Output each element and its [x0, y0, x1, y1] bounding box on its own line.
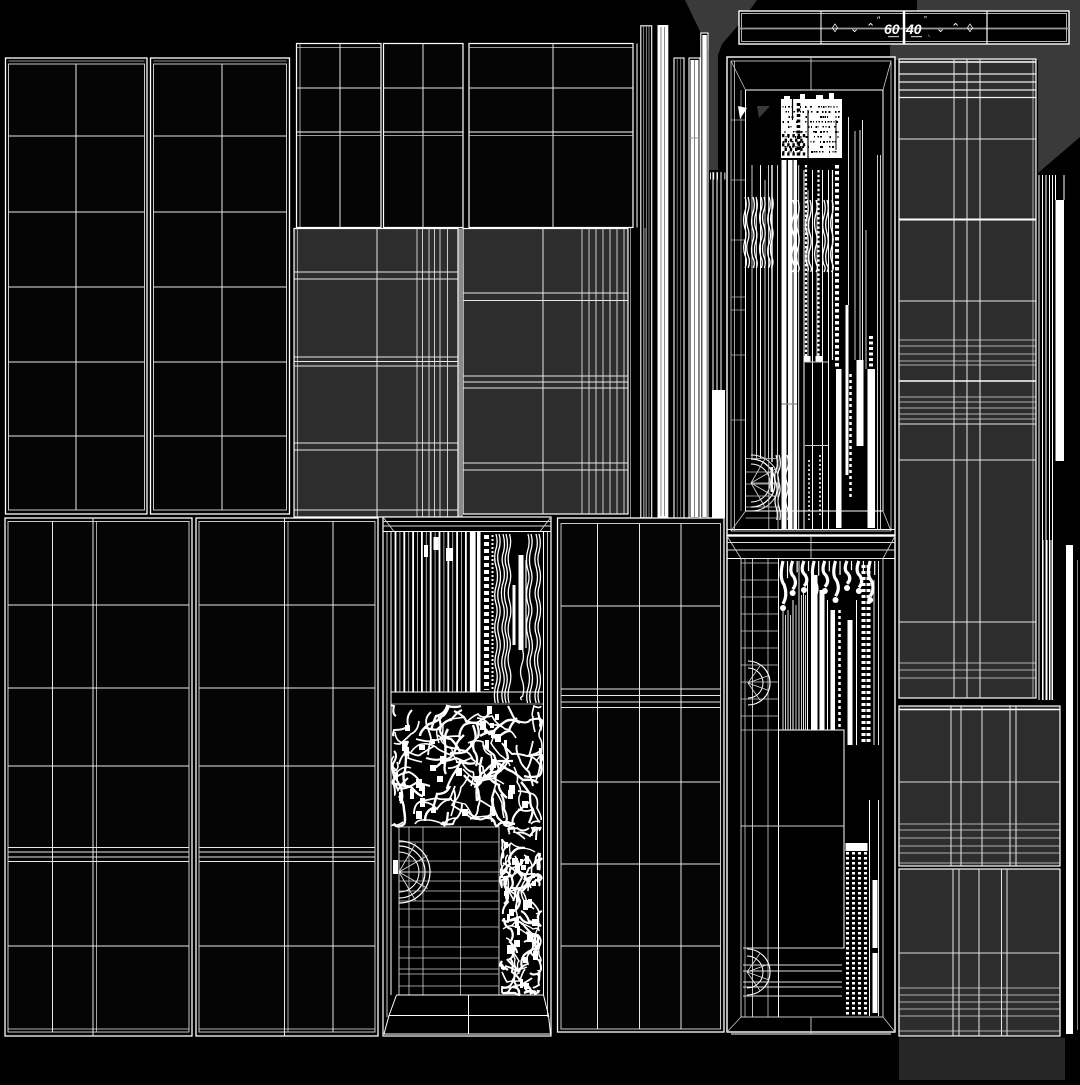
svg-text:″: ″ — [924, 15, 927, 24]
svg-text:40: 40 — [905, 21, 922, 37]
svg-text:⌄: ⌄ — [850, 23, 859, 35]
svg-text:⌃: ⌃ — [866, 22, 875, 34]
svg-text:⌄: ⌄ — [936, 23, 945, 35]
svg-text:⌞: ⌞ — [928, 32, 931, 38]
svg-text:60: 60 — [884, 21, 900, 37]
svg-text:◊: ◊ — [832, 21, 838, 35]
svg-text:⌃: ⌃ — [951, 22, 960, 34]
svg-text:◊: ◊ — [967, 21, 973, 35]
